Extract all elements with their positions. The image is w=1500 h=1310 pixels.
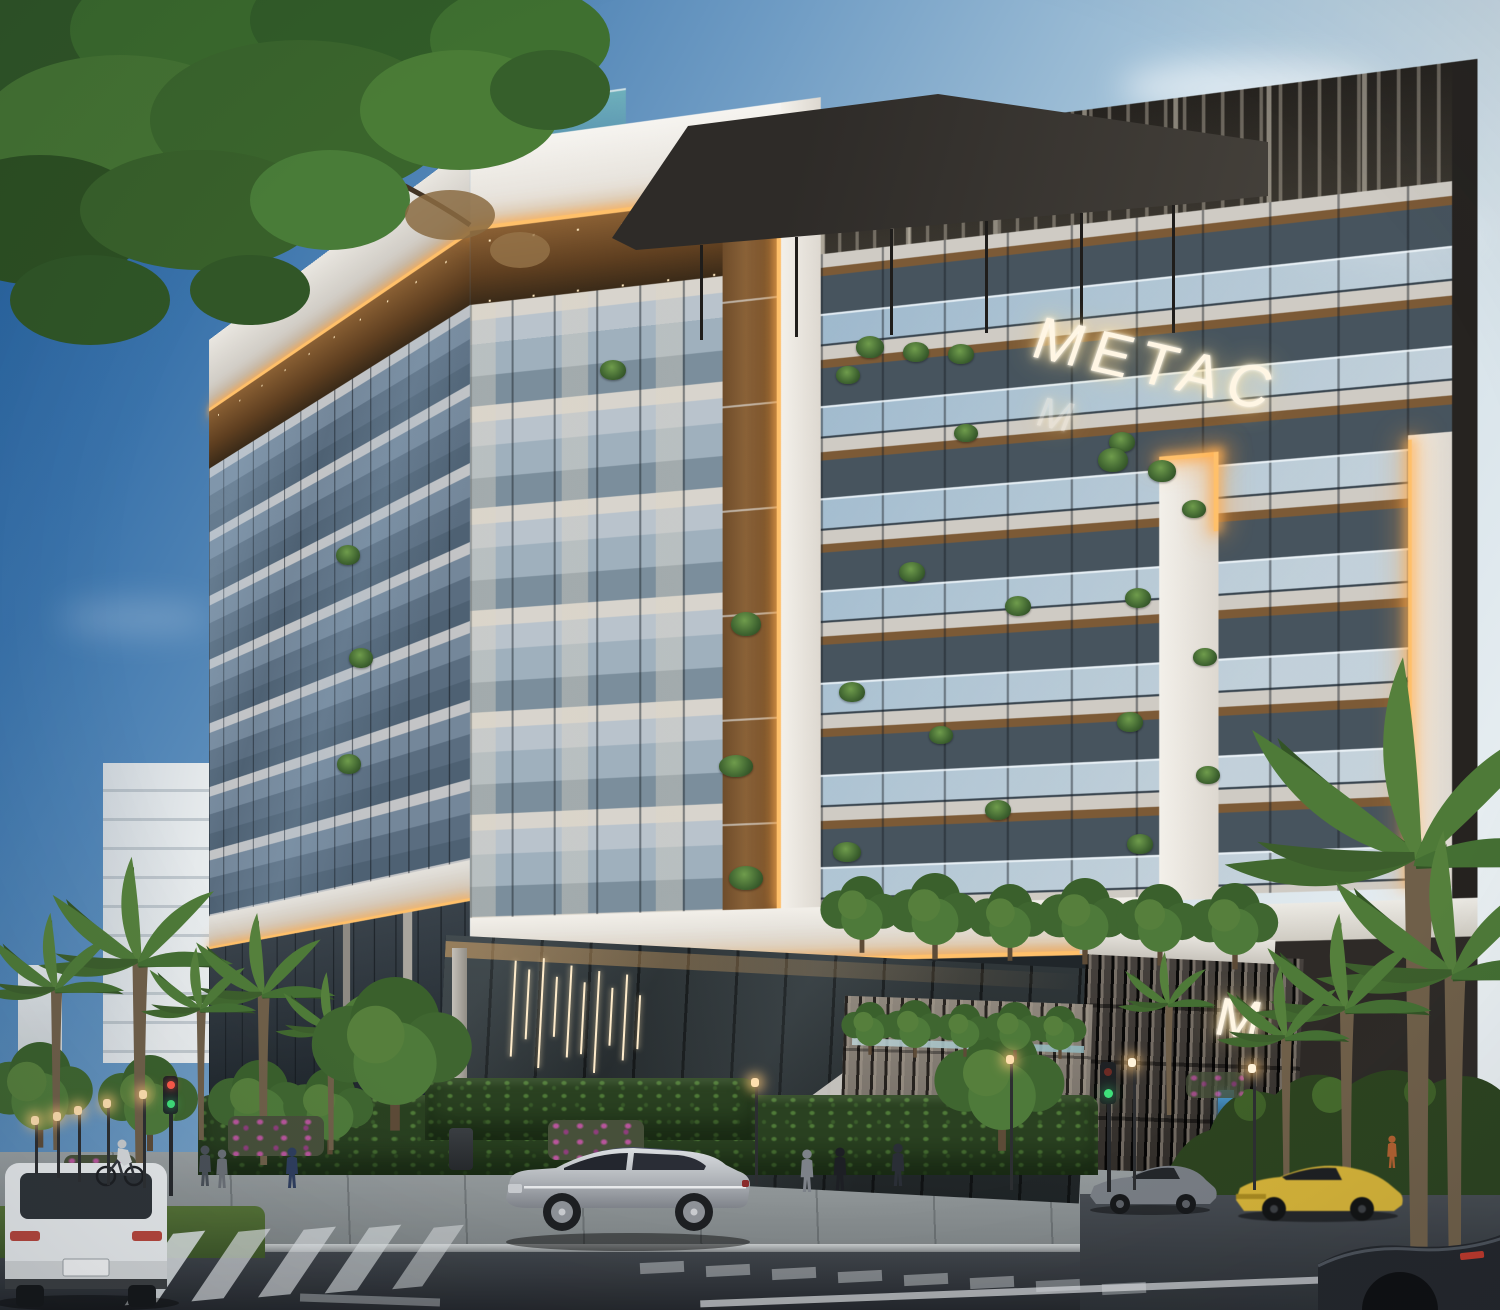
pedestrian <box>892 1143 905 1186</box>
trash-bin <box>449 1128 473 1170</box>
pedestrians-layer <box>0 0 1500 1310</box>
signal-red-light <box>1104 1068 1112 1076</box>
traffic-signal <box>163 1076 178 1114</box>
traffic-signal-pole <box>1107 1104 1111 1192</box>
pedestrian <box>286 1148 298 1189</box>
traffic-signal <box>1100 1062 1116 1104</box>
pedestrian <box>1387 1136 1397 1168</box>
cyclist <box>97 1140 143 1186</box>
pedestrian <box>801 1149 814 1192</box>
pedestrian <box>216 1150 227 1188</box>
architectural-render-scene: METAC M M <box>0 0 1500 1310</box>
signal-green-light <box>167 1100 175 1108</box>
pedestrian <box>834 1147 847 1190</box>
traffic-signal-pole <box>169 1114 173 1196</box>
signal-red-light <box>167 1081 175 1089</box>
pedestrian <box>199 1146 211 1187</box>
signal-green-light <box>1104 1089 1113 1098</box>
